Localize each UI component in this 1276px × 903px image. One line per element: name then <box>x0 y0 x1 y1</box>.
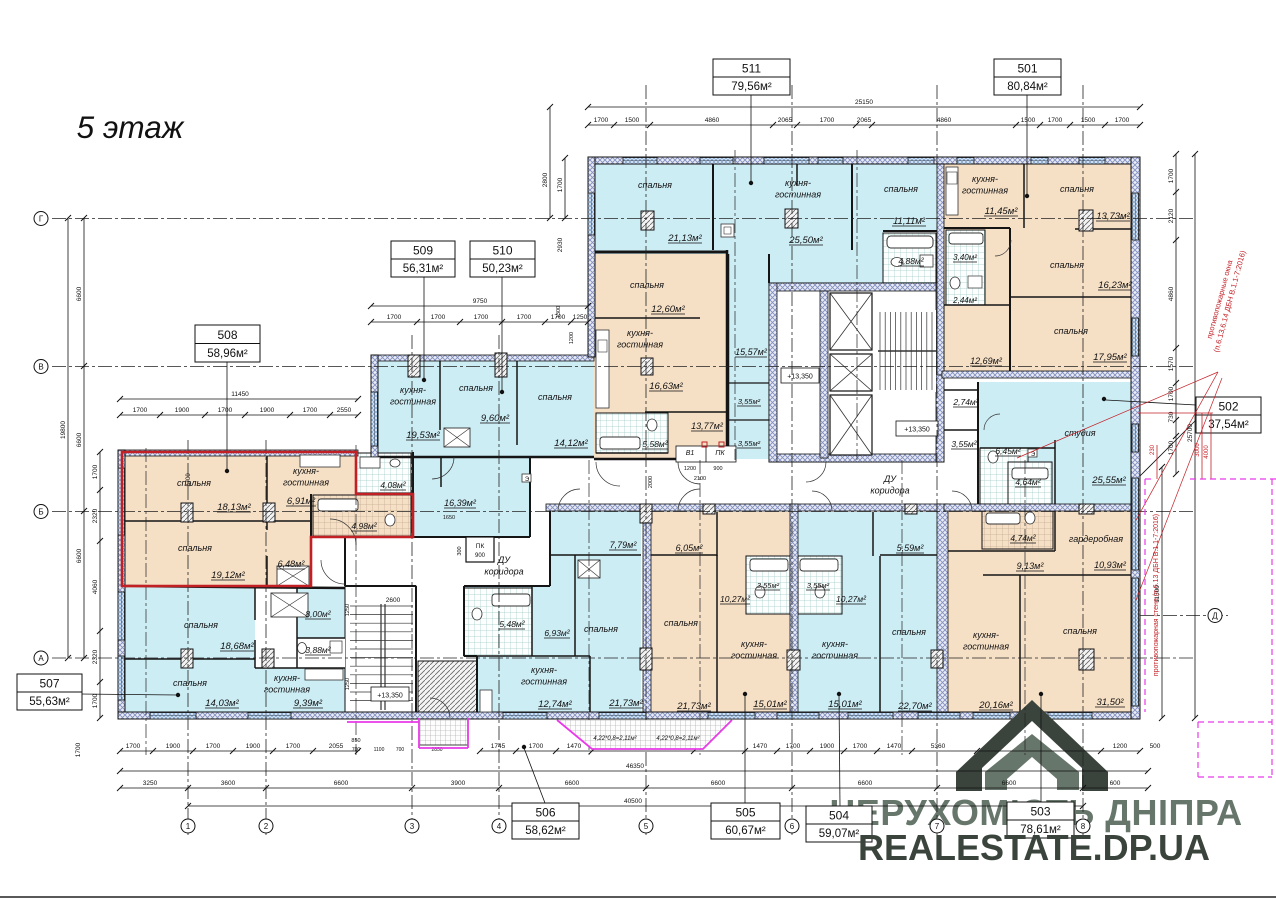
svg-text:спальня: спальня <box>538 392 572 402</box>
svg-text:1700: 1700 <box>126 743 141 750</box>
svg-text:2120: 2120 <box>1168 208 1175 223</box>
svg-text:6600: 6600 <box>858 780 873 787</box>
svg-text:Б: Б <box>38 507 43 516</box>
svg-text:6,48м²: 6,48м² <box>278 559 306 569</box>
svg-text:58,62м²: 58,62м² <box>525 825 566 837</box>
svg-text:1470: 1470 <box>887 743 902 750</box>
svg-text:спальня: спальня <box>1050 260 1084 270</box>
svg-text:1700: 1700 <box>218 407 233 414</box>
svg-text:кухня-: кухня- <box>274 673 300 683</box>
svg-text:спальня: спальня <box>1063 626 1097 636</box>
svg-text:9,60м²: 9,60м² <box>481 413 510 424</box>
svg-text:13,73м²: 13,73м² <box>1096 211 1130 222</box>
svg-text:гостинная: гостинная <box>775 190 821 200</box>
svg-text:гостинная: гостинная <box>617 340 663 350</box>
svg-text:4,88м²: 4,88м² <box>898 256 924 266</box>
svg-text:4860: 4860 <box>1168 286 1175 301</box>
svg-text:1700: 1700 <box>1048 117 1063 124</box>
svg-text:10,93м²: 10,93м² <box>1094 560 1127 570</box>
svg-text:спальня: спальня <box>173 678 207 688</box>
svg-text:900: 900 <box>713 466 722 472</box>
svg-text:501: 501 <box>1017 62 1037 76</box>
svg-text:1700: 1700 <box>133 407 148 414</box>
svg-text:кухня-: кухня- <box>531 665 557 675</box>
svg-text:1100: 1100 <box>374 747 385 753</box>
svg-text:15,01м²: 15,01м² <box>828 699 862 710</box>
svg-text:ДУ: ДУ <box>883 474 897 484</box>
svg-text:15,01м²: 15,01м² <box>753 699 787 710</box>
svg-text:2550: 2550 <box>337 407 352 414</box>
svg-text:2: 2 <box>264 822 269 831</box>
svg-text:1650: 1650 <box>443 515 455 521</box>
svg-text:6600: 6600 <box>334 780 349 787</box>
svg-text:1900: 1900 <box>260 407 275 414</box>
svg-text:21,73м²: 21,73м² <box>608 698 643 709</box>
svg-text:500: 500 <box>1150 743 1161 750</box>
svg-text:3,55м²: 3,55м² <box>757 581 780 590</box>
svg-text:12,69м²: 12,69м² <box>970 356 1003 366</box>
svg-text:гостинная: гостинная <box>812 651 858 661</box>
svg-text:80,84м²: 80,84м² <box>1007 81 1048 93</box>
svg-text:1700: 1700 <box>1168 168 1175 183</box>
svg-text:гостинная: гостинная <box>521 677 567 687</box>
svg-text:1250: 1250 <box>573 314 588 321</box>
svg-text:502: 502 <box>1218 400 1238 414</box>
svg-text:6,45м²: 6,45м² <box>995 446 1021 456</box>
svg-text:25150: 25150 <box>855 99 873 106</box>
svg-text:230: 230 <box>1150 444 1156 455</box>
svg-text:А: А <box>38 654 44 663</box>
svg-text:гостинная: гостинная <box>962 186 1008 196</box>
svg-text:1900: 1900 <box>175 407 190 414</box>
svg-text:9,13м²: 9,13м² <box>1017 561 1045 571</box>
svg-text:Д: Д <box>1212 611 1218 620</box>
svg-text:3,55м²: 3,55м² <box>807 581 830 590</box>
svg-text:16,63м²: 16,63м² <box>649 381 683 392</box>
svg-text:6,91м²: 6,91м² <box>287 496 316 507</box>
svg-text:11450: 11450 <box>231 391 249 398</box>
svg-text:37,54м²: 37,54м² <box>1208 419 1249 431</box>
svg-text:спальня: спальня <box>892 627 926 637</box>
svg-text:21,73м²: 21,73м² <box>676 701 711 712</box>
svg-text:59,07м²: 59,07м² <box>819 828 860 840</box>
svg-text:4: 4 <box>497 822 502 831</box>
svg-text:1700: 1700 <box>92 464 99 479</box>
svg-text:25,55м²: 25,55м² <box>1091 475 1126 486</box>
svg-text:60,67м²: 60,67м² <box>725 825 766 837</box>
svg-text:5360: 5360 <box>931 743 946 750</box>
svg-text:6600: 6600 <box>76 286 83 301</box>
svg-text:спальня: спальня <box>638 180 672 190</box>
svg-text:6600: 6600 <box>711 780 726 787</box>
svg-text:25,50м²: 25,50м² <box>788 235 823 246</box>
svg-text:коридора: коридора <box>870 486 909 496</box>
svg-text:2600: 2600 <box>386 597 401 604</box>
svg-text:спальня: спальня <box>884 184 918 194</box>
svg-text:4,74м²: 4,74м² <box>1010 533 1036 543</box>
svg-text:503: 503 <box>1030 805 1050 819</box>
svg-text:4060: 4060 <box>92 579 99 594</box>
svg-text:1700: 1700 <box>529 743 544 750</box>
svg-text:20,16м²: 20,16м² <box>978 700 1013 711</box>
svg-text:5,48м²: 5,48м² <box>499 619 525 629</box>
svg-text:21,13м²: 21,13м² <box>667 233 702 244</box>
svg-text:1700: 1700 <box>75 742 82 757</box>
svg-text:1700: 1700 <box>517 314 532 321</box>
svg-text:7,79м²: 7,79м² <box>610 540 638 550</box>
svg-text:спальня: спальня <box>1060 184 1094 194</box>
svg-text:10,27м²: 10,27м² <box>836 594 867 604</box>
svg-text:9750: 9750 <box>473 298 488 305</box>
svg-text:58,96м²: 58,96м² <box>207 348 248 360</box>
svg-text:5,59м²: 5,59м² <box>897 543 925 553</box>
svg-text:коридора: коридора <box>484 567 523 577</box>
svg-text:1700: 1700 <box>92 693 99 708</box>
svg-text:6: 6 <box>790 822 795 831</box>
svg-text:1700: 1700 <box>286 743 301 750</box>
svg-text:2065: 2065 <box>778 117 793 124</box>
svg-text:1470: 1470 <box>753 743 768 750</box>
svg-text:3600: 3600 <box>221 780 236 787</box>
svg-text:19,12м²: 19,12м² <box>211 570 245 581</box>
svg-text:1700: 1700 <box>1115 117 1130 124</box>
svg-text:Г: Г <box>39 214 44 223</box>
svg-text:гостинная: гостинная <box>731 651 777 661</box>
svg-text:16,39м²: 16,39м² <box>444 498 477 508</box>
svg-text:1250: 1250 <box>345 604 351 616</box>
svg-text:1700: 1700 <box>853 743 868 750</box>
svg-text:гостинная: гостинная <box>264 685 310 695</box>
svg-text:1470: 1470 <box>567 743 582 750</box>
svg-text:3: 3 <box>410 822 415 831</box>
svg-text:спальня: спальня <box>177 478 211 488</box>
svg-text:50,23м²: 50,23м² <box>482 263 523 275</box>
svg-text:17,95м²: 17,95м² <box>1093 352 1127 363</box>
svg-text:505: 505 <box>735 806 755 820</box>
svg-text:1200: 1200 <box>684 466 696 472</box>
svg-text:1: 1 <box>186 822 191 831</box>
svg-text:1900: 1900 <box>820 743 835 750</box>
svg-text:4,98м²: 4,98м² <box>351 521 377 531</box>
svg-text:ПК: ПК <box>476 543 485 550</box>
svg-text:4860: 4860 <box>705 117 720 124</box>
svg-text:+13,350: +13,350 <box>904 427 930 434</box>
svg-text:спальня: спальня <box>459 383 493 393</box>
svg-text:5: 5 <box>644 822 649 831</box>
svg-text:19,53м²: 19,53м² <box>406 430 440 441</box>
svg-text:4,22*0,8=2,11м²: 4,22*0,8=2,11м² <box>593 736 637 742</box>
svg-text:гостинная: гостинная <box>283 478 329 488</box>
svg-text:3,55м²: 3,55м² <box>738 439 761 448</box>
svg-text:11,11м²: 11,11м² <box>893 216 926 227</box>
svg-text:56,31м²: 56,31м² <box>403 263 444 275</box>
svg-text:510: 510 <box>492 244 512 258</box>
svg-text:4000: 4000 <box>1204 445 1210 459</box>
svg-text:2000: 2000 <box>648 476 654 488</box>
svg-text:1700: 1700 <box>1168 386 1175 401</box>
svg-text:противопожарная стена (п.6.13: противопожарная стена (п.6.13 ДБН В.1.1-… <box>1153 514 1160 676</box>
svg-text:1700: 1700 <box>186 473 192 487</box>
svg-text:2320: 2320 <box>92 508 99 523</box>
svg-text:2,44м²: 2,44м² <box>952 296 977 305</box>
svg-text:3250: 3250 <box>143 780 158 787</box>
svg-text:1250: 1250 <box>345 678 351 690</box>
svg-text:300: 300 <box>457 546 463 555</box>
svg-text:1745: 1745 <box>491 743 506 750</box>
svg-text:8,00м²: 8,00м² <box>305 609 331 619</box>
svg-text:31,50²: 31,50² <box>1097 697 1125 708</box>
svg-text:2320: 2320 <box>92 649 99 664</box>
svg-text:507: 507 <box>39 677 59 691</box>
svg-text:спальня: спальня <box>184 620 218 630</box>
svg-text:1700: 1700 <box>474 314 489 321</box>
svg-text:кухня-: кухня- <box>972 174 998 184</box>
svg-text:3,55м²: 3,55м² <box>951 439 977 449</box>
svg-text:6600: 6600 <box>1002 780 1017 787</box>
svg-text:Э: Э <box>525 477 530 483</box>
svg-text:гардеробная: гардеробная <box>1069 534 1123 544</box>
svg-text:13,77м²: 13,77м² <box>691 421 724 431</box>
svg-text:1900: 1900 <box>166 743 181 750</box>
svg-text:55,63м²: 55,63м² <box>29 696 70 708</box>
svg-text:1500: 1500 <box>1021 117 1036 124</box>
svg-text:40500: 40500 <box>624 798 642 805</box>
svg-text:2930: 2930 <box>557 237 564 252</box>
svg-text:10,27м²: 10,27м² <box>720 594 751 604</box>
svg-text:6600: 6600 <box>565 780 580 787</box>
svg-text:кухня-: кухня- <box>973 630 999 640</box>
svg-text:1200: 1200 <box>1113 743 1128 750</box>
svg-text:504: 504 <box>829 809 849 823</box>
svg-text:кухня-: кухня- <box>293 466 319 476</box>
svg-text:9,39м²: 9,39м² <box>294 698 323 709</box>
svg-text:кухня-: кухня- <box>400 385 426 395</box>
svg-text:600: 600 <box>1110 780 1121 787</box>
svg-text:1700: 1700 <box>387 314 402 321</box>
svg-text:кухня-: кухня- <box>822 639 848 649</box>
svg-text:1700: 1700 <box>594 117 609 124</box>
svg-text:кухня-: кухня- <box>627 328 653 338</box>
svg-text:3000: 3000 <box>1195 443 1201 457</box>
svg-text:509: 509 <box>413 244 433 258</box>
svg-text:14,03м²: 14,03м² <box>205 698 239 709</box>
svg-text:6600: 6600 <box>76 548 83 563</box>
svg-text:4,64м²: 4,64м² <box>1015 477 1041 487</box>
svg-text:700: 700 <box>396 747 405 753</box>
svg-text:511: 511 <box>742 62 761 76</box>
svg-text:16,23м²: 16,23м² <box>1098 280 1132 291</box>
svg-text:22,70м²: 22,70м² <box>897 701 932 712</box>
svg-text:12,60м²: 12,60м² <box>651 304 685 315</box>
svg-text:4860: 4860 <box>937 117 952 124</box>
svg-text:1700: 1700 <box>1168 440 1175 455</box>
svg-text:19800: 19800 <box>60 421 67 439</box>
svg-text:В1: В1 <box>686 450 695 457</box>
svg-text:3,40м²: 3,40м² <box>953 253 977 262</box>
svg-text:900: 900 <box>475 553 486 559</box>
svg-text:кухня-: кухня- <box>741 639 767 649</box>
svg-text:46350: 46350 <box>626 763 644 770</box>
svg-text:1500: 1500 <box>625 117 640 124</box>
svg-text:14,12м²: 14,12м² <box>554 438 588 449</box>
svg-text:кухня-: кухня- <box>785 178 811 188</box>
svg-text:4,08м²: 4,08м² <box>380 480 406 490</box>
svg-text:1700: 1700 <box>303 407 318 414</box>
svg-text:2065: 2065 <box>857 117 872 124</box>
svg-text:3900: 3900 <box>451 780 466 787</box>
svg-text:1700: 1700 <box>820 117 835 124</box>
svg-text:3,55м²: 3,55м² <box>738 397 761 406</box>
svg-text:+13,350: +13,350 <box>377 693 403 700</box>
svg-text:2800: 2800 <box>542 172 549 187</box>
svg-text:спальня: спальня <box>664 618 698 628</box>
svg-text:506: 506 <box>535 806 555 820</box>
svg-text:гостинная: гостинная <box>390 397 436 407</box>
svg-text:6,05м²: 6,05м² <box>676 543 704 553</box>
svg-text:1570: 1570 <box>1168 356 1175 371</box>
svg-text:15,57м²: 15,57м² <box>735 347 768 357</box>
svg-text:5 этаж: 5 этаж <box>77 109 185 145</box>
svg-text:1700: 1700 <box>786 743 801 750</box>
svg-text:3,88м²: 3,88м² <box>305 645 331 655</box>
svg-text:REALESTATE.DP.UA: REALESTATE.DP.UA <box>858 827 1210 868</box>
svg-text:1700: 1700 <box>206 743 221 750</box>
svg-text:1900: 1900 <box>246 743 261 750</box>
svg-text:1200: 1200 <box>569 332 575 344</box>
svg-text:гостинная: гостинная <box>963 642 1009 652</box>
svg-text:спальня: спальня <box>630 280 664 290</box>
svg-text:1700: 1700 <box>431 314 446 321</box>
svg-text:Э: Э <box>1031 452 1036 458</box>
svg-text:12,74м²: 12,74м² <box>538 699 572 710</box>
svg-text:6,93м²: 6,93м² <box>544 628 570 638</box>
svg-text:79,56м²: 79,56м² <box>731 81 772 93</box>
svg-text:2055: 2055 <box>329 743 344 750</box>
svg-text:2,74м²: 2,74м² <box>952 397 979 407</box>
svg-text:студия: студия <box>1064 428 1095 438</box>
svg-text:1700: 1700 <box>551 314 566 321</box>
svg-text:спальня: спальня <box>178 543 212 553</box>
svg-text:1700: 1700 <box>557 177 564 192</box>
svg-text:6600: 6600 <box>76 432 83 447</box>
svg-text:1500: 1500 <box>1081 117 1096 124</box>
svg-text:ПК: ПК <box>715 450 725 457</box>
svg-text:18,68м²: 18,68м² <box>220 641 254 652</box>
svg-text:508: 508 <box>217 328 237 342</box>
svg-text:+13,350: +13,350 <box>787 374 813 381</box>
svg-text:В: В <box>38 362 43 371</box>
svg-text:11,45м²: 11,45м² <box>985 206 1019 217</box>
svg-text:4,22*0,8=2,11м²: 4,22*0,8=2,11м² <box>656 736 700 742</box>
